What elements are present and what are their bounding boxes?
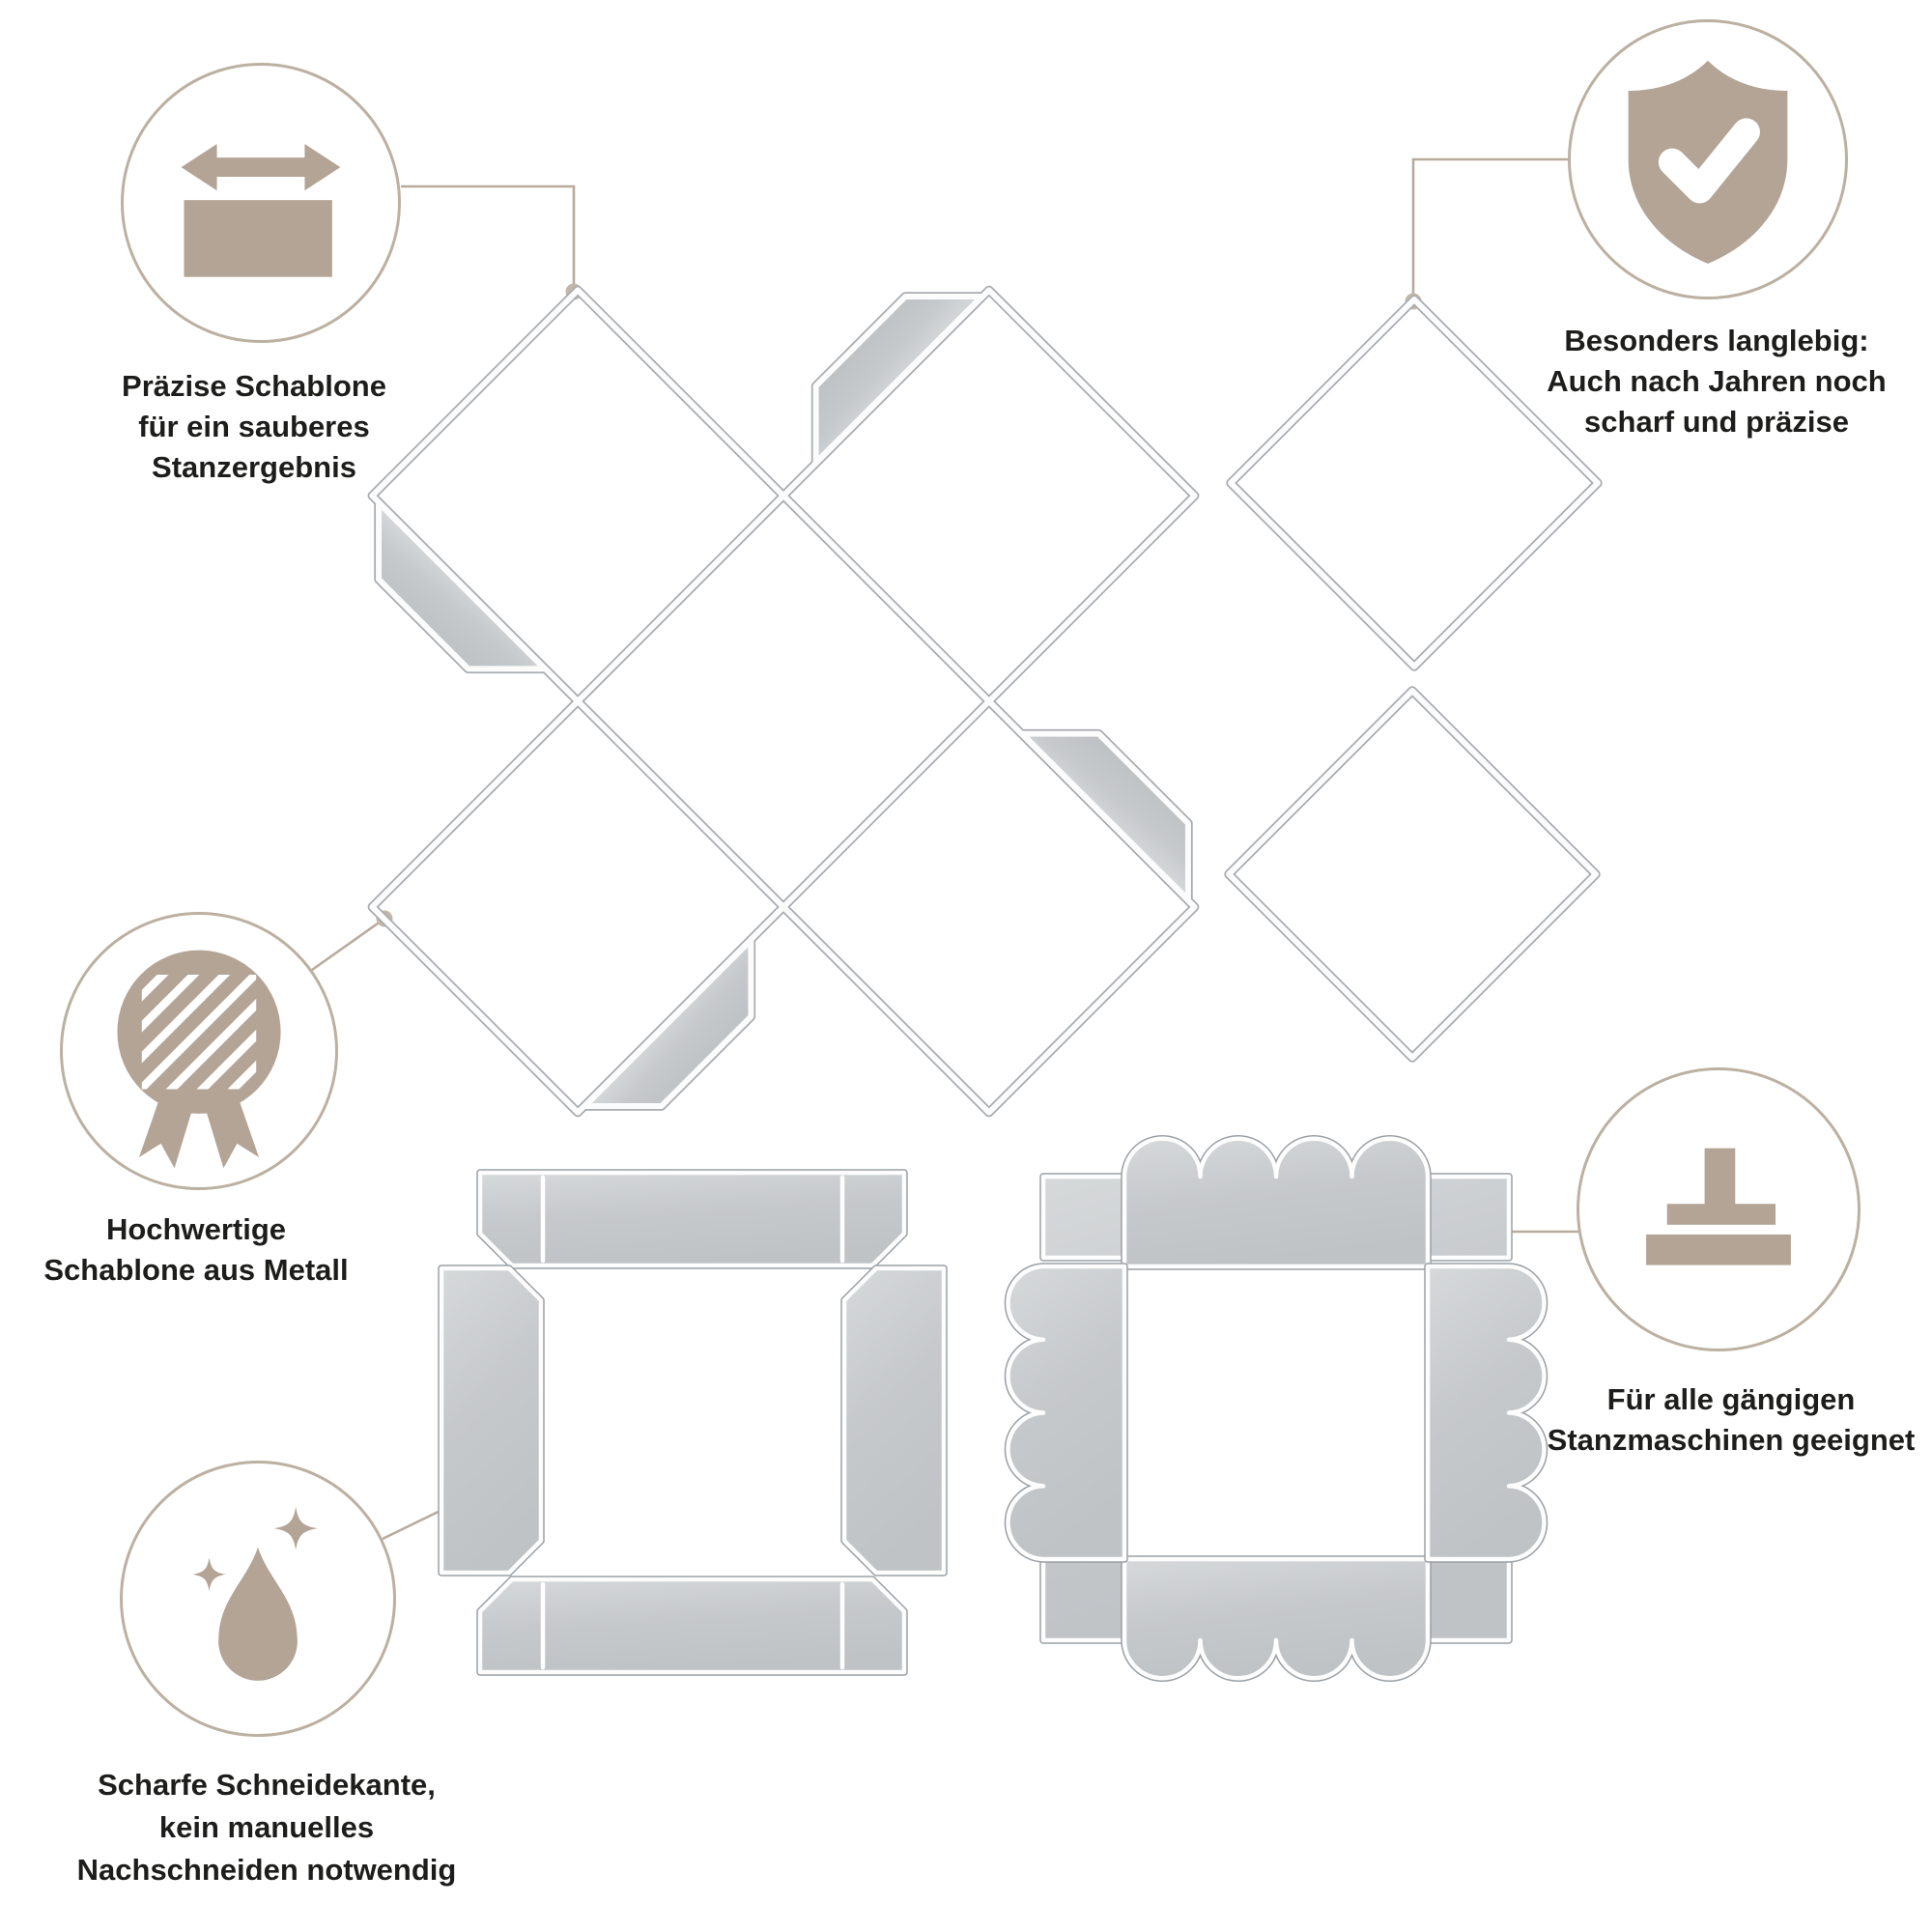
callout-circle-praezise — [121, 63, 401, 343]
callout-text-hochwertig: Hochwertige Schablone aus Metall — [13, 1209, 380, 1291]
callout-line: kein manuelles — [54, 1806, 479, 1849]
callout-line: scharf und präzise — [1523, 402, 1910, 442]
square-frame-die-lower — [1229, 691, 1596, 1058]
box-lid-die-straight — [441, 1173, 944, 1672]
connector-line — [401, 186, 574, 285]
callout-line: Für alle gängigen — [1519, 1379, 1932, 1420]
callout-circle-stanzmaschinen — [1577, 1067, 1861, 1351]
drop-sparkles-icon — [123, 1463, 393, 1734]
callout-line: Präzise Schablone — [71, 366, 438, 407]
callout-text-stanzmaschinen: Für alle gängigen Stanzmaschinen geeigne… — [1519, 1379, 1932, 1461]
callout-line: Besonders langlebig: — [1523, 321, 1910, 361]
product-infographic: Präzise Schablone für ein sauberes Stanz… — [0, 0, 1932, 1932]
callout-circle-langlebig — [1568, 19, 1848, 299]
callout-line: Stanzmaschinen geeignet — [1519, 1420, 1932, 1461]
shield-check-icon — [1571, 22, 1845, 297]
callout-line: für ein sauberes — [71, 407, 438, 447]
callout-text-langlebig: Besonders langlebig: Auch nach Jahren no… — [1523, 321, 1910, 442]
callout-text-schneidekante: Scharfe Schneidekante, kein manuelles Na… — [54, 1764, 479, 1891]
callout-line: Hochwertige — [13, 1209, 380, 1250]
callout-line: Auch nach Jahren noch — [1523, 361, 1910, 402]
callout-text-praezise: Präzise Schablone für ein sauberes Stanz… — [71, 366, 438, 488]
callout-circle-hochwertig — [60, 912, 338, 1190]
callout-line: Stanzergebnis — [71, 447, 438, 488]
callout-line: Scharfe Schneidekante, — [54, 1764, 479, 1806]
box-lid-die-scalloped — [1008, 1139, 1544, 1679]
width-arrow-icon — [124, 66, 398, 340]
medal-icon — [63, 915, 335, 1187]
press-icon — [1579, 1070, 1858, 1349]
connector-line — [1413, 159, 1568, 295]
callout-circle-schneidekante — [120, 1461, 396, 1737]
callout-line: Schablone aus Metall — [13, 1250, 380, 1291]
callout-line: Nachschneiden notwendig — [54, 1849, 479, 1891]
